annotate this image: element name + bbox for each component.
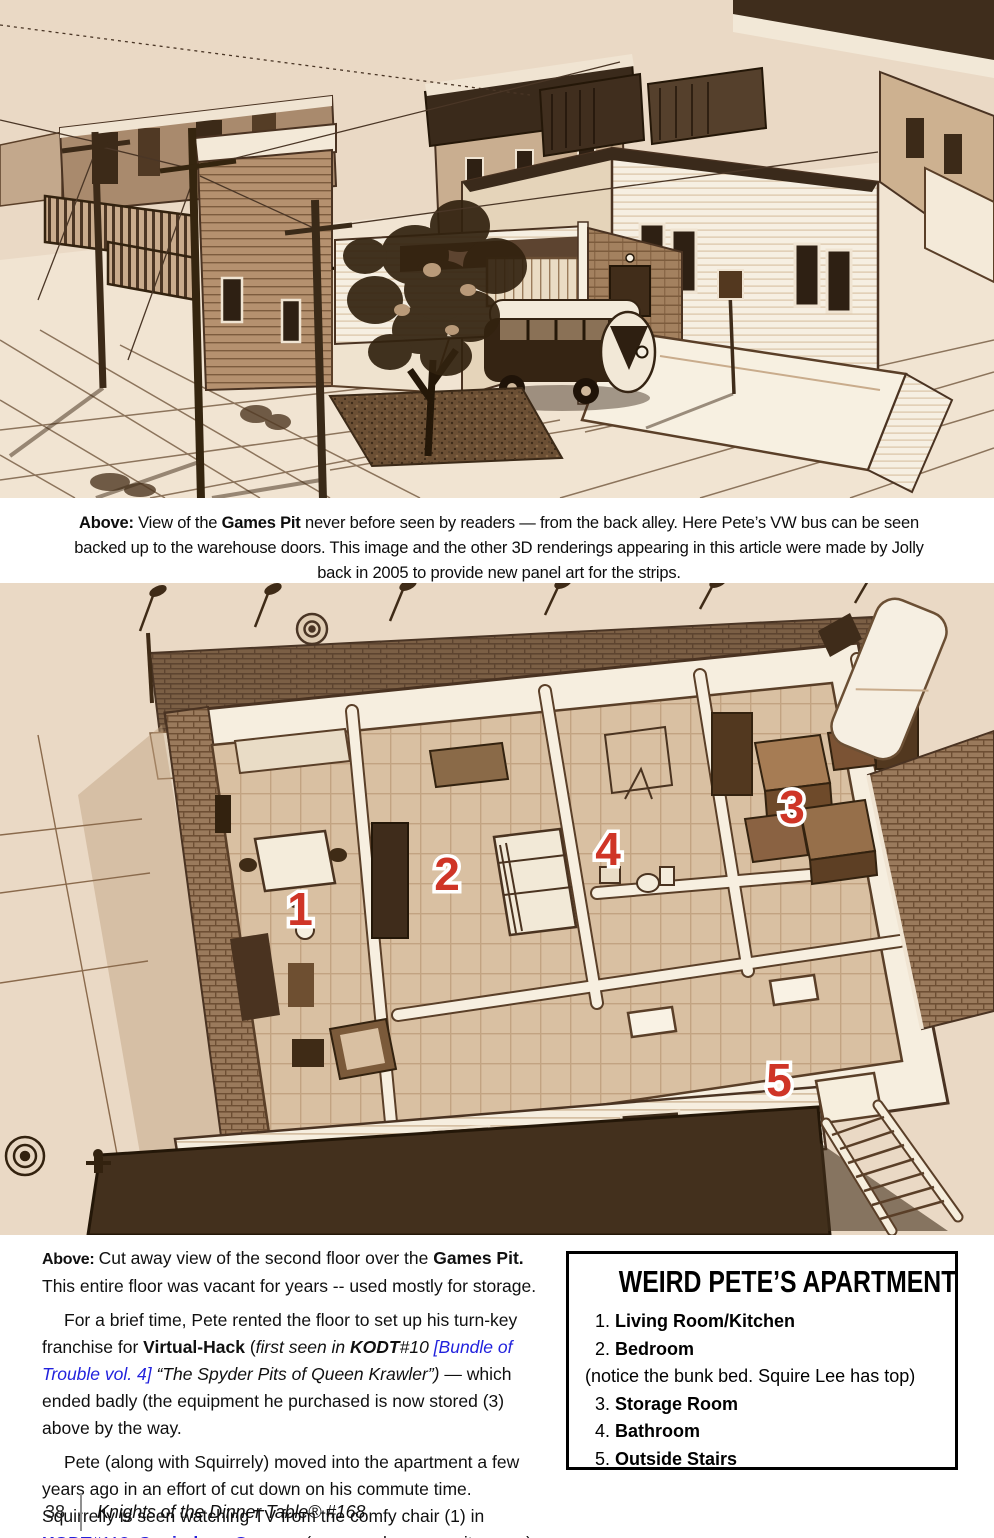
- bedroom-note: (notice the bunk bed. Squire Lee has top…: [585, 1363, 941, 1391]
- magazine-title: Knights of the Dinner Table® #168: [97, 1502, 365, 1523]
- kodt-issue-ref: KODT: [350, 1337, 400, 1357]
- manhole: [297, 614, 327, 644]
- caption-lead: Above:: [42, 1251, 99, 1268]
- target-marker: [6, 1137, 44, 1175]
- list-item: 2. Bedroom (notice the bunk bed. Squire …: [595, 1336, 941, 1391]
- list-item: 4. Bathroom: [595, 1418, 941, 1446]
- article-text: Above: Cut away view of the second floor…: [42, 1245, 542, 1485]
- lower-content: Above: Cut away view of the second floor…: [0, 1235, 994, 1485]
- alley-render-illustration: [0, 0, 994, 498]
- door-lamp: [626, 254, 634, 262]
- legend-title: WEIRD PETE’S APARTMENT: [619, 1264, 905, 1300]
- games-pit-name: Games Pit: [222, 514, 301, 532]
- room-label-4: 4: [595, 823, 621, 875]
- top-image-caption: Above: View of the Games Pit never befor…: [0, 498, 994, 583]
- room-label-3: 3: [779, 781, 805, 833]
- room-label-2: 2: [434, 848, 460, 900]
- page-number: 38: [45, 1502, 65, 1523]
- alley-render-figure: [0, 0, 994, 498]
- apartment-cutaway-figure: 1 2 3 4 5: [0, 583, 994, 1235]
- apartment-legend-box: WEIRD PETE’S APARTMENT 1. Living Room/Ki…: [566, 1251, 958, 1470]
- list-item: 3. Storage Room: [595, 1391, 941, 1419]
- games-pit-name: Games Pit.: [433, 1248, 523, 1268]
- list-item: 1. Living Room/Kitchen: [595, 1308, 941, 1336]
- virtual-hack-name: Virtual-Hack: [143, 1337, 245, 1357]
- apartment-cutaway-illustration: 1 2 3 4 5: [0, 583, 994, 1235]
- list-item: 5. Outside Stairs: [595, 1446, 941, 1474]
- page-footer: 38 Knights of the Dinner Table® #168: [0, 1486, 994, 1538]
- room-label-1: 1: [287, 883, 313, 935]
- footer-divider: [80, 1493, 82, 1531]
- paragraph-2: For a brief time, Pete rented the floor …: [42, 1307, 542, 1442]
- room-label-5: 5: [766, 1054, 792, 1106]
- magazine-page: Above: View of the Games Pit never befor…: [0, 0, 994, 1538]
- paragraph-1: Above: Cut away view of the second floor…: [42, 1245, 542, 1300]
- caption-lead: Above:: [79, 514, 138, 532]
- room-list: 1. Living Room/Kitchen 2. Bedroom (notic…: [583, 1308, 941, 1473]
